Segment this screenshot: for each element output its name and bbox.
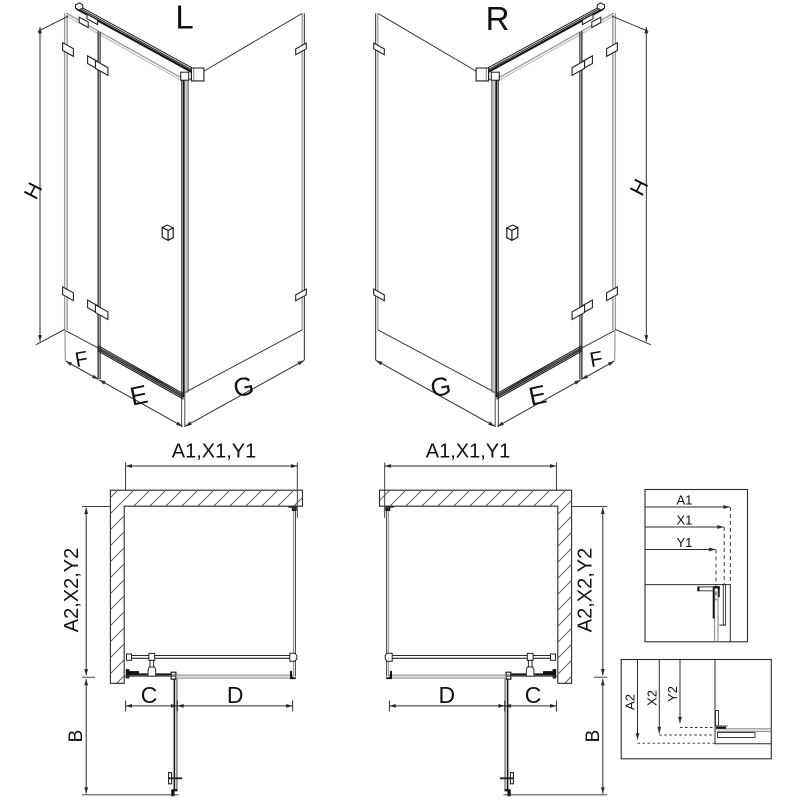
svg-text:A1,X1,Y1: A1,X1,Y1 <box>172 441 257 463</box>
svg-text:B: B <box>583 730 604 743</box>
svg-text:C: C <box>141 682 158 708</box>
svg-text:R: R <box>486 0 510 37</box>
svg-text:B: B <box>66 730 87 743</box>
svg-text:A2: A2 <box>623 694 638 710</box>
svg-text:L: L <box>175 0 193 36</box>
svg-text:C: C <box>525 682 542 708</box>
svg-text:D: D <box>438 682 455 708</box>
svg-text:Y1: Y1 <box>676 535 692 550</box>
svg-text:A2,X2,Y2: A2,X2,Y2 <box>61 548 83 633</box>
svg-text:X2: X2 <box>644 690 659 706</box>
svg-text:A1: A1 <box>676 492 692 507</box>
svg-text:A2,X2,Y2: A2,X2,Y2 <box>575 548 597 633</box>
svg-text:A1,X1,Y1: A1,X1,Y1 <box>426 441 511 463</box>
svg-text:Y2: Y2 <box>665 686 680 702</box>
svg-text:X1: X1 <box>676 512 692 527</box>
svg-text:D: D <box>227 682 244 708</box>
